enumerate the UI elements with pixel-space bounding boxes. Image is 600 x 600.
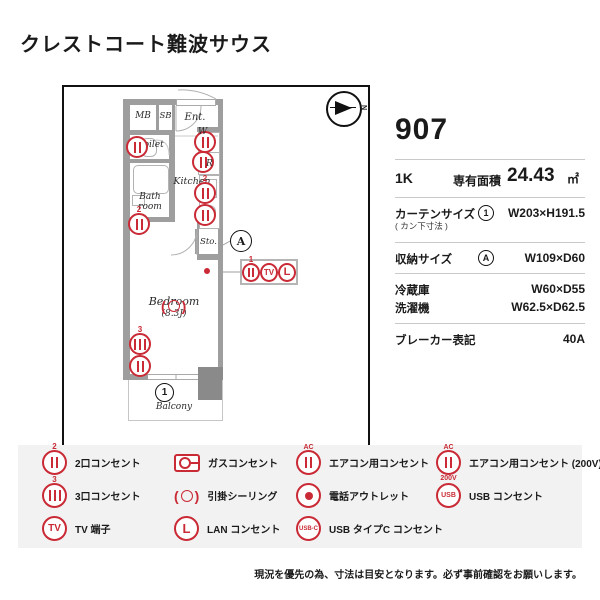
phone-dot: [305, 492, 313, 500]
balcony-ref-circle: 1: [155, 383, 174, 402]
washer-marker: W: [198, 127, 207, 137]
ceiling-rose-icon: (): [174, 488, 199, 504]
area-value: 24.43: [507, 165, 555, 187]
storage-size-label: 収納サイズ: [395, 251, 452, 267]
legend-item-ceiling: () 引掛シーリング: [174, 488, 296, 504]
legend-label: 2口コンセント: [75, 455, 141, 470]
north-compass-icon: N: [326, 91, 362, 127]
legend-panel: 2 2口コンセント ガスコンセント AC エアコン用コンセント AC200V エ…: [18, 445, 582, 548]
disclaimer-note: 現況を優先の為、寸法は目安となります。必ず事前確認をお願いします。: [0, 566, 582, 581]
label-mb: MB: [130, 111, 156, 121]
usbc-letter: USB-C: [299, 526, 318, 532]
outlet-count: 2: [52, 442, 56, 451]
curtain-value: W203×H191.5: [508, 206, 585, 220]
ceiling-paren: ): [182, 298, 187, 314]
legend-item-ac200: AC200V エアコン用コンセント (200V): [436, 450, 600, 475]
legend-item-tv: TV TV 端子: [42, 516, 174, 541]
fridge-label: 冷蔵庫: [395, 282, 430, 298]
usb-letter: USB: [441, 492, 456, 499]
fridge-value: W60×D55: [531, 282, 585, 296]
floorplan-page: クレストコート難波サウス: [0, 0, 600, 600]
divider: [395, 159, 585, 160]
legend-item-gas: ガスコンセント: [174, 454, 296, 472]
outlet-count: 3: [52, 475, 56, 484]
tv-letter: TV: [264, 268, 274, 277]
storage-size-value: W109×D60: [525, 251, 585, 265]
outlet-icon-kitchen-2: [194, 204, 216, 226]
divider: [395, 242, 585, 243]
ac-200v-outlet-icon: AC200V: [436, 450, 461, 475]
voltage-label: 200V: [440, 475, 456, 482]
label-sb: SB: [157, 111, 174, 121]
legend-item-lan: L LAN コンセント: [174, 516, 296, 541]
washer-label: 洗濯機: [395, 300, 430, 316]
outlet-count: 1: [249, 255, 253, 264]
lan-letter: L: [183, 521, 191, 536]
lan-jack-icon: L: [174, 516, 199, 541]
curtain-sublabel: ( カン下寸法 ): [395, 220, 448, 232]
legend-label: エアコン用コンセント (200V): [469, 455, 600, 470]
breaker-label: ブレーカー表記: [395, 332, 476, 348]
callout-box: 1 TV L: [240, 259, 298, 285]
lan-letter: L: [284, 266, 291, 278]
label-ent: Ent.: [180, 112, 210, 123]
gas-line: [191, 462, 198, 464]
outlet-icon-bedroom-2: [129, 355, 151, 377]
compass-needle: [335, 101, 352, 115]
label-bath-line1: Bath: [139, 192, 160, 202]
curtain-ref-circle: 1: [478, 205, 494, 221]
divider: [395, 323, 585, 324]
ceiling-light-icon: (): [161, 298, 186, 314]
room-number: 907: [395, 113, 448, 147]
outlet-icon-bath: 2: [128, 213, 150, 235]
washer-value: W62.5×D62.5: [511, 300, 585, 314]
ceiling-paren: (: [174, 488, 179, 504]
outlet-icon-kitchen-1: 2: [194, 182, 216, 204]
tv-jack-icon: TV: [42, 516, 67, 541]
legend-item-usb: USB USB コンセント: [436, 483, 600, 508]
area-label: 専有面積: [453, 172, 501, 189]
label-balcony: Balcony: [144, 402, 204, 412]
outlet-count: 2: [137, 205, 141, 214]
outlet-count: 2: [203, 174, 207, 183]
legend-label: 引掛シーリング: [207, 488, 277, 503]
legend-label: 電話アウトレット: [329, 488, 409, 503]
ac-outlet-icon: AC: [296, 450, 321, 475]
outlet-icon-toilet: [126, 136, 148, 158]
layout-type: 1K: [395, 170, 413, 186]
fridge-marker: R: [206, 159, 213, 169]
lan-jack-icon: L: [278, 263, 296, 282]
legend-item-outlet2: 2 2口コンセント: [42, 450, 174, 475]
legend-label: USB コンセント: [469, 488, 543, 503]
ceiling-circle: [168, 300, 180, 312]
ceiling-paren: ): [195, 488, 200, 504]
legend-label: LAN コンセント: [207, 521, 280, 536]
legend-item-outlet3: 3 3口コンセント: [42, 483, 174, 508]
area-unit: ㎡: [567, 170, 579, 187]
phone-outlet-icon: [204, 268, 210, 274]
legend-item-phone: 電話アウトレット: [296, 483, 436, 508]
tv-jack-icon: TV: [260, 263, 278, 282]
storage-ref-circle: A: [230, 230, 252, 252]
gas-outlet-icon: [174, 454, 200, 472]
outlet-3-icon: 3: [42, 483, 67, 508]
plan-lines: [64, 87, 368, 460]
phone-outlet-icon: [296, 483, 321, 508]
ac-label: AC: [303, 444, 313, 451]
outlet-icon-bedroom-1: 3: [129, 333, 151, 355]
outlet-icon-callout: 1: [242, 263, 260, 282]
legend-label: エアコン用コンセント: [329, 455, 429, 470]
tv-letter: TV: [48, 523, 61, 534]
storage-ref-circle-info: A: [478, 250, 494, 266]
breaker-value: 40A: [563, 332, 585, 346]
legend-item-ac: AC エアコン用コンセント: [296, 450, 436, 475]
compass-north-label: N: [360, 105, 367, 110]
label-bath-line2: room: [138, 202, 162, 212]
legend-item-usbc: USB-C USB タイプC コンセント: [296, 516, 436, 541]
usbc-outlet-icon: USB-C: [296, 516, 321, 541]
ceiling-circle: [181, 490, 193, 502]
outlet-2-icon: 2: [42, 450, 67, 475]
usb-outlet-icon: USB: [436, 483, 461, 508]
legend-label: 3口コンセント: [75, 488, 141, 503]
label-storage: Sto.: [199, 237, 218, 247]
legend-label: ガスコンセント: [208, 455, 278, 470]
building-title: クレストコート難波サウス: [20, 28, 272, 57]
floorplan-canvas: MB SB Ent. Toilet Kitchen Bath room Sto.…: [62, 85, 370, 462]
ceiling-paren: (: [161, 298, 166, 314]
outlet-count: 3: [138, 325, 142, 334]
gas-circle: [179, 457, 191, 469]
legend-label: TV 端子: [75, 521, 111, 536]
legend-label: USB タイプC コンセント: [329, 521, 443, 536]
ac-label: AC: [443, 444, 453, 451]
divider: [395, 273, 585, 274]
divider: [395, 197, 585, 198]
